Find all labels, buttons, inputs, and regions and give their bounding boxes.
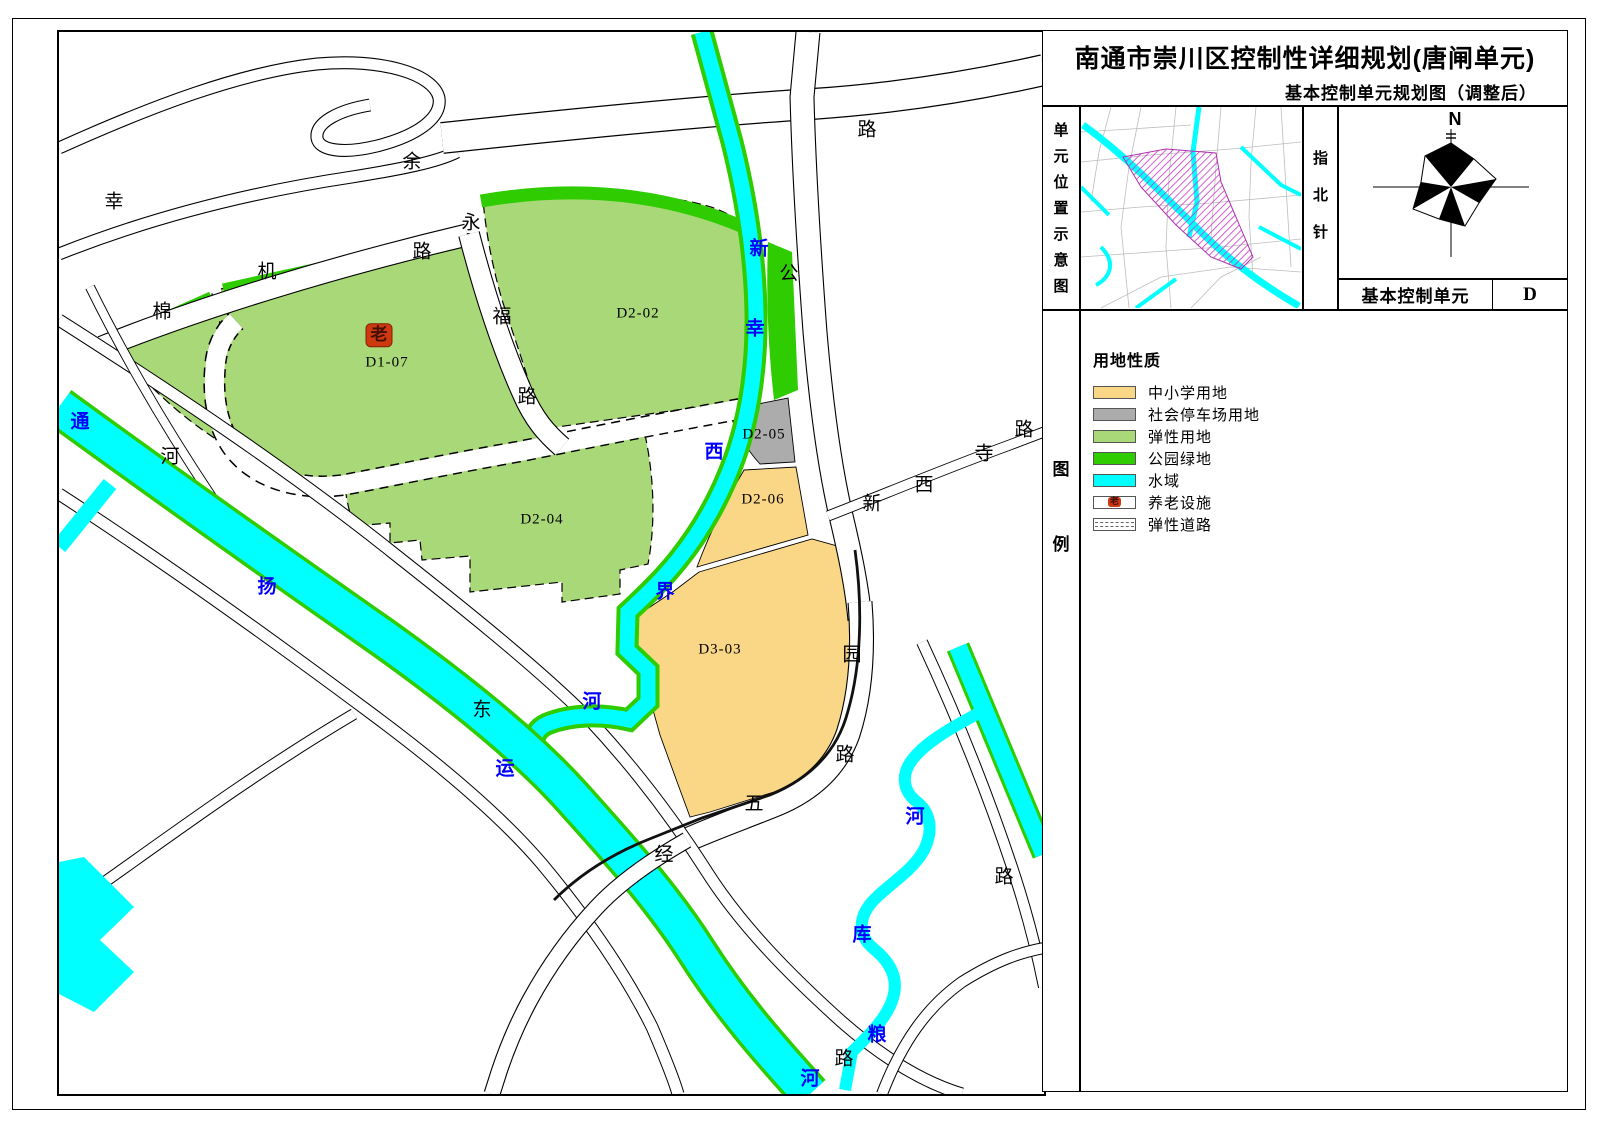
legend-item-label: 养老设施 xyxy=(1148,492,1212,513)
legend-item: 弹性道路 xyxy=(1093,513,1567,535)
legend-box: 用地性质 中小学用地社会停车场用地弹性用地公园绿地水域老养老设施弹性道路 xyxy=(1080,310,1568,1092)
map-geometry xyxy=(59,32,1044,1094)
park-wedge-east xyxy=(767,242,798,400)
legend-item-label: 中小学用地 xyxy=(1148,382,1228,403)
legend-swatch-icon xyxy=(1093,408,1136,421)
river-zigzag-sw xyxy=(59,857,134,1012)
legend-swatch-icon xyxy=(1093,518,1136,531)
legend-swatch-icon xyxy=(1093,474,1136,487)
legend-swatch-icon xyxy=(1093,452,1136,465)
inset-map-geometry xyxy=(1081,107,1301,308)
legend-item: 社会停车场用地 xyxy=(1093,403,1567,425)
compass-rose-icon xyxy=(1339,107,1566,277)
north-arrow-label: 指北针 xyxy=(1303,106,1338,310)
legend-item: 水域 xyxy=(1093,469,1567,491)
legend-item: 老养老设施 xyxy=(1093,491,1567,513)
legend-item-label: 公园绿地 xyxy=(1148,448,1212,469)
legend-item: 公园绿地 xyxy=(1093,447,1567,469)
legend-item-label: 社会停车场用地 xyxy=(1148,404,1260,425)
legend-item: 弹性用地 xyxy=(1093,425,1567,447)
legend-title-column: 图例 xyxy=(1042,310,1080,1092)
legend-items: 中小学用地社会停车场用地弹性用地公园绿地水域老养老设施弹性道路 xyxy=(1093,381,1567,535)
legend-item-label: 弹性道路 xyxy=(1148,514,1212,535)
location-inset-map xyxy=(1080,106,1303,310)
legend-swatch-icon xyxy=(1093,386,1136,399)
info-panel: 南通市崇川区控制性详细规划(唐闸单元) 基本控制单元规划图（调整后） 单元位置示… xyxy=(1042,30,1568,1092)
unit-strip: 基本控制单元 D xyxy=(1338,279,1568,310)
page-subtitle: 基本控制单元规划图（调整后） xyxy=(1043,79,1567,104)
compass-box: N xyxy=(1338,106,1568,279)
planning-map: 老 幸余路公棉机路永福路河东新西寺路园路五经路路通扬运河新幸西界河河库粮D1-0… xyxy=(57,30,1046,1096)
legend-header: 用地性质 xyxy=(1093,347,1567,371)
page-title: 南通市崇川区控制性详细规划(唐闸单元) xyxy=(1043,39,1567,75)
north-letter: N xyxy=(1449,109,1462,130)
title-block: 南通市崇川区控制性详细规划(唐闸单元) 基本控制单元规划图（调整后） xyxy=(1042,30,1568,106)
unit-strip-label: 基本控制单元 xyxy=(1339,280,1493,309)
legend-item-label: 弹性用地 xyxy=(1148,426,1212,447)
legend-item: 中小学用地 xyxy=(1093,381,1567,403)
legend-swatch-icon xyxy=(1093,430,1136,443)
location-diagram-label: 单元位置示意图 xyxy=(1042,106,1080,310)
inset-unit-highlight xyxy=(1123,149,1253,269)
unit-strip-code: D xyxy=(1493,280,1567,309)
legend-swatch-icon: 老 xyxy=(1093,496,1136,509)
plan-sheet: 老 幸余路公棉机路永福路河东新西寺路园路五经路路通扬运河新幸西界河河库粮D1-0… xyxy=(0,0,1600,1130)
legend-item-label: 水域 xyxy=(1148,470,1180,491)
